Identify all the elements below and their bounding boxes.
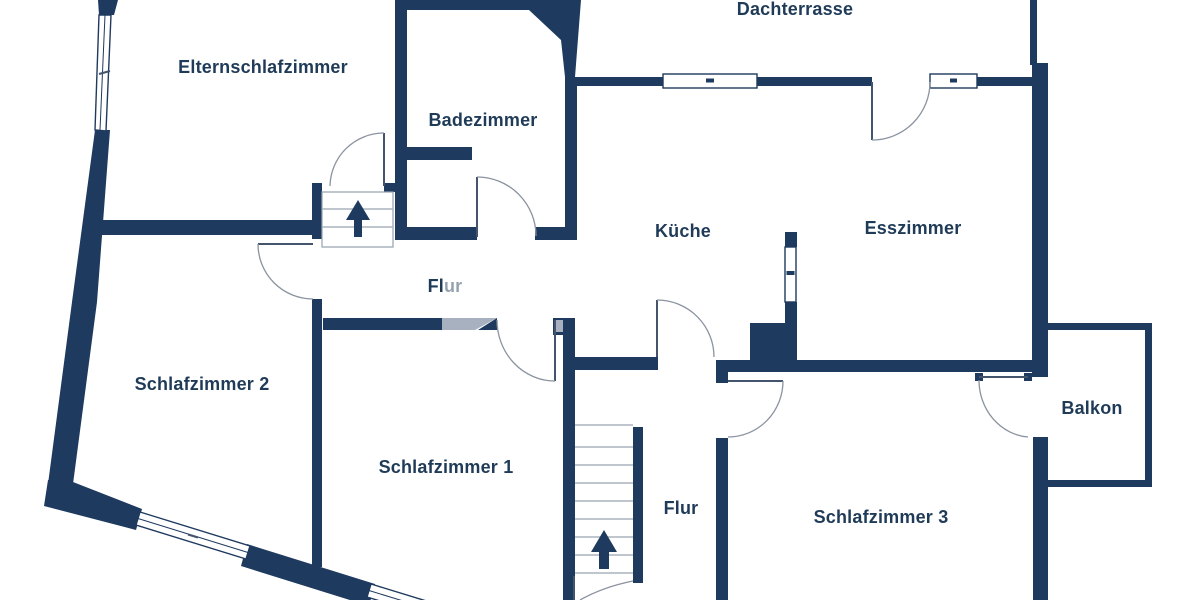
wall-bath-top <box>395 0 535 10</box>
wall-kitchen-corner-block <box>750 323 797 360</box>
stair-up-arrow <box>591 530 617 569</box>
floor-plan-svg: Dachterrasse Elternschlafzimmer Badezimm… <box>0 0 1200 600</box>
wall-partition-top-stub <box>785 232 797 247</box>
wall-bottom-seg1 <box>44 480 142 530</box>
staircase-upper-landing <box>322 192 393 247</box>
wall-hall-bottom <box>323 318 442 330</box>
door-bedroom-1 <box>497 320 555 381</box>
window-bottom-corner <box>367 584 446 600</box>
room-label-elternschlafzimmer: Elternschlafzimmer <box>178 57 348 77</box>
wall-bath-right <box>565 77 577 240</box>
wall-bath-left <box>395 0 407 240</box>
window-bottom-left <box>136 512 250 559</box>
wall-landing-left-stub <box>312 183 322 239</box>
door-bedroom-3 <box>728 381 783 437</box>
wall-partition-bottom-stub <box>785 302 797 323</box>
staircase-main <box>575 425 633 573</box>
door-dining-terrace <box>872 82 930 140</box>
room-label-esszimmer: Esszimmer <box>865 218 962 238</box>
room-label-balkon: Balkon <box>1061 398 1122 418</box>
wall-hall-bottom-light <box>442 318 466 330</box>
wall-bath-bottom-left <box>395 227 477 240</box>
door-balcony <box>975 373 1032 437</box>
wall-terrace-right <box>1030 0 1037 65</box>
room-label-schlafzimmer-2: Schlafzimmer 2 <box>135 374 270 394</box>
wall-bath-stub <box>395 147 472 160</box>
room-label-schlafzimmer-3: Schlafzimmer 3 <box>814 507 949 527</box>
room-label-dachterrasse: Dachterrasse <box>737 0 853 19</box>
door-bedroom-2 <box>258 244 313 299</box>
room-label-flur-unten: Flur <box>664 498 699 518</box>
wall-top-seg3 <box>977 77 1032 86</box>
window-tick <box>706 79 714 83</box>
wall-left-top-block <box>98 0 118 15</box>
room-label-badezimmer: Badezimmer <box>428 110 537 130</box>
door-bathroom <box>477 177 536 237</box>
wall-bedroom-divider <box>312 299 322 567</box>
wall-balcony-right <box>1145 323 1152 487</box>
floor-plan-canvas: Dachterrasse Elternschlafzimmer Badezimm… <box>0 0 1200 600</box>
wall-left-lower <box>48 302 97 484</box>
door-parents-bedroom <box>330 133 384 186</box>
wall-parents-bottom <box>87 220 312 235</box>
wall-bath-chamfer <box>529 0 581 77</box>
wall-stair-right <box>633 427 643 583</box>
window-tick <box>950 79 957 83</box>
window-kitchen-partition <box>785 247 796 302</box>
wall-hall2-right <box>716 438 728 600</box>
wall-top-seg1 <box>572 77 663 86</box>
window-terrace-left <box>663 74 757 88</box>
watermark-ghost <box>444 272 463 297</box>
wall-top-seg2 <box>757 77 872 86</box>
wall-left-upper <box>72 130 110 302</box>
wall-balcony-top <box>1040 323 1152 330</box>
window-tick <box>787 271 795 275</box>
wall-right-lower <box>1033 437 1048 600</box>
wall-bath-bottom-right <box>535 227 577 240</box>
wall-dining-bottom <box>718 360 1032 372</box>
window-left-slanted <box>95 15 111 131</box>
door-kitchen <box>657 300 714 357</box>
wall-landing-right-stub <box>384 183 397 192</box>
room-label-schlafzimmer-1: Schlafzimmer 1 <box>379 457 514 477</box>
wall-balcony-bottom <box>1040 480 1152 487</box>
door-stair-bottom <box>574 576 633 600</box>
wall-kitchen-bottom <box>572 357 658 370</box>
room-label-kueche: Küche <box>655 221 711 241</box>
wall-bottom-seg2 <box>241 544 375 600</box>
wall-hall2-right-stub <box>716 360 728 383</box>
window-terrace-right <box>930 74 977 88</box>
